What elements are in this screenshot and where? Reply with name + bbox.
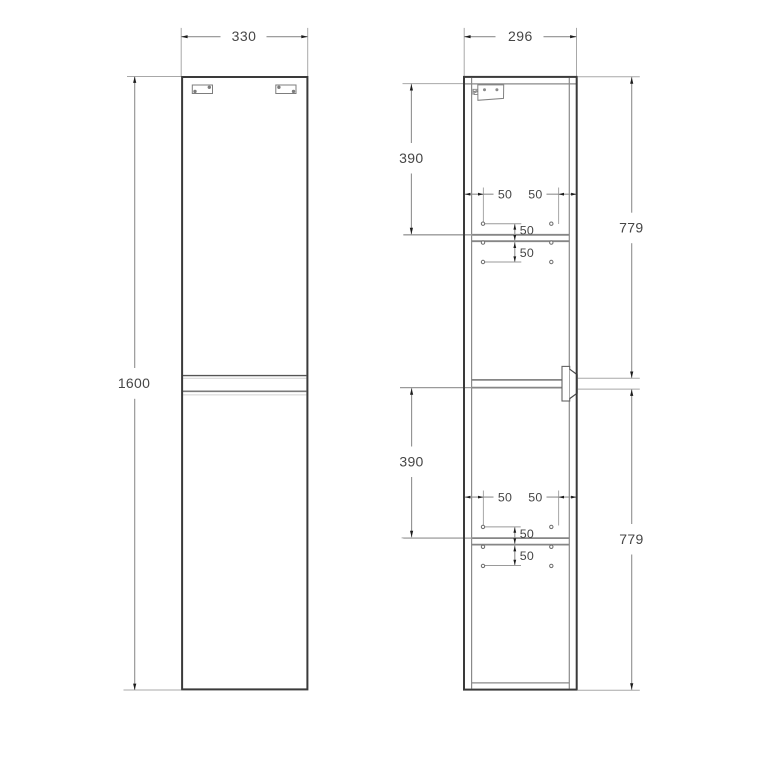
- svg-text:50: 50: [528, 188, 542, 202]
- svg-text:390: 390: [399, 454, 423, 470]
- svg-text:1600: 1600: [118, 375, 150, 391]
- svg-text:50: 50: [528, 491, 542, 505]
- svg-text:296: 296: [508, 28, 533, 44]
- svg-text:50: 50: [520, 246, 534, 260]
- svg-text:50: 50: [520, 549, 534, 563]
- svg-text:50: 50: [520, 223, 534, 237]
- svg-text:390: 390: [399, 150, 423, 166]
- svg-text:330: 330: [232, 28, 257, 44]
- svg-text:50: 50: [498, 491, 512, 505]
- svg-text:779: 779: [619, 220, 643, 236]
- svg-text:50: 50: [498, 188, 512, 202]
- svg-text:779: 779: [619, 531, 643, 547]
- svg-text:50: 50: [520, 527, 534, 541]
